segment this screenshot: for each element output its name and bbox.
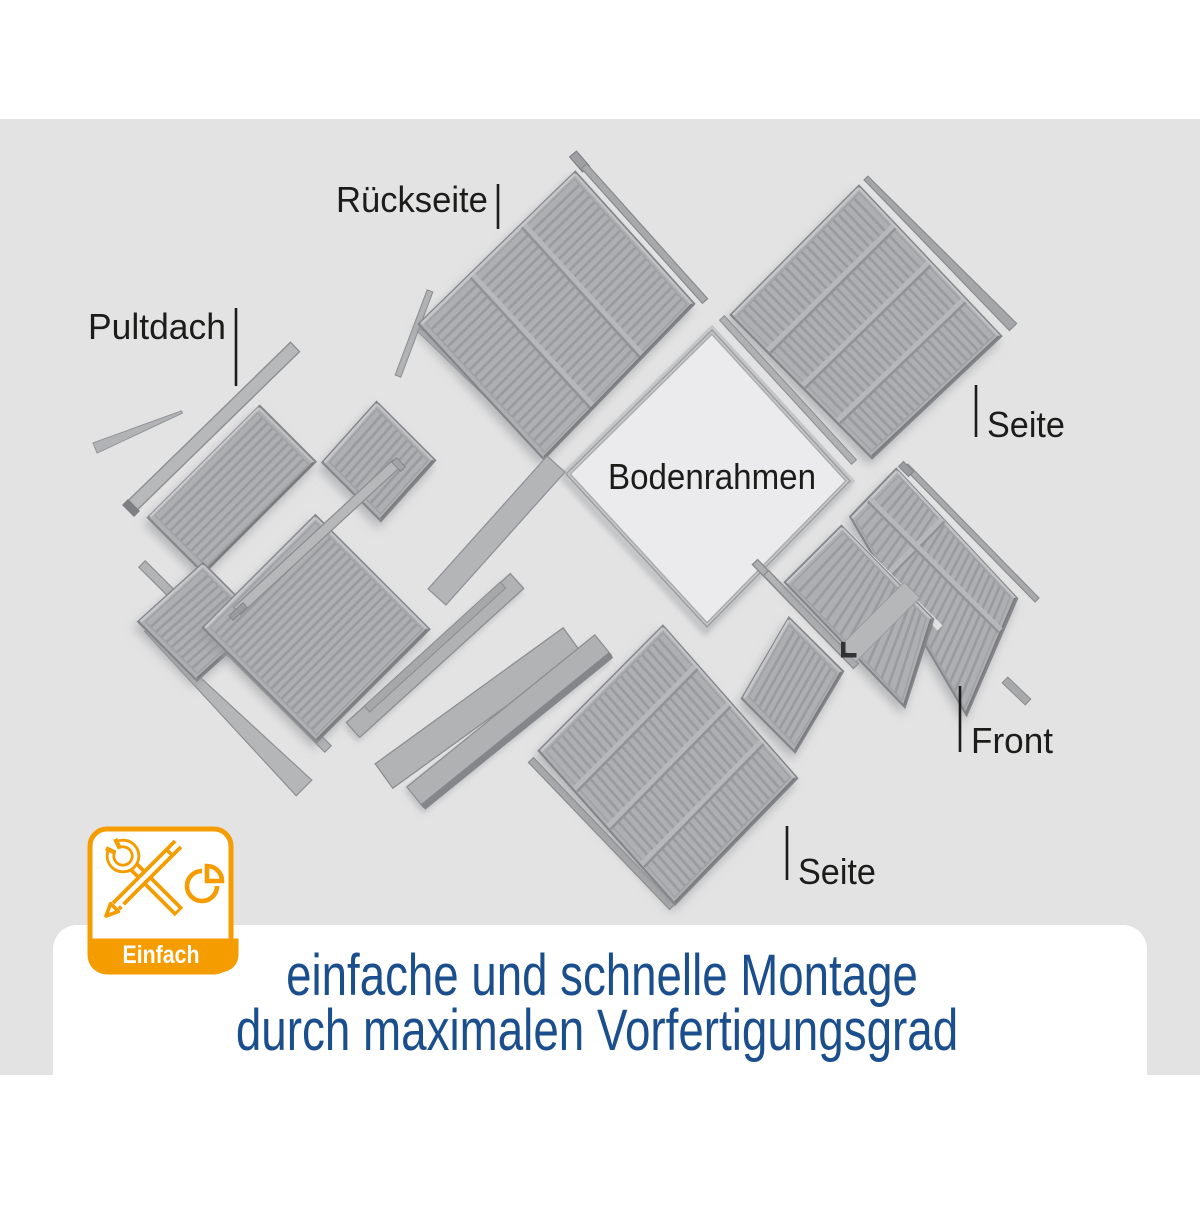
svg-text:Bodenrahmen: Bodenrahmen bbox=[608, 458, 816, 498]
svg-text:Front: Front bbox=[971, 721, 1053, 761]
svg-text:Seite: Seite bbox=[987, 405, 1065, 445]
svg-text:Einfach: Einfach bbox=[123, 940, 200, 968]
svg-text:Pultdach: Pultdach bbox=[88, 307, 226, 347]
svg-text:Rückseite: Rückseite bbox=[336, 180, 488, 220]
svg-text:Seite: Seite bbox=[798, 852, 876, 892]
svg-text:durch maximalen Vorfertigungsg: durch maximalen Vorfertigungsgrad bbox=[236, 999, 958, 1063]
